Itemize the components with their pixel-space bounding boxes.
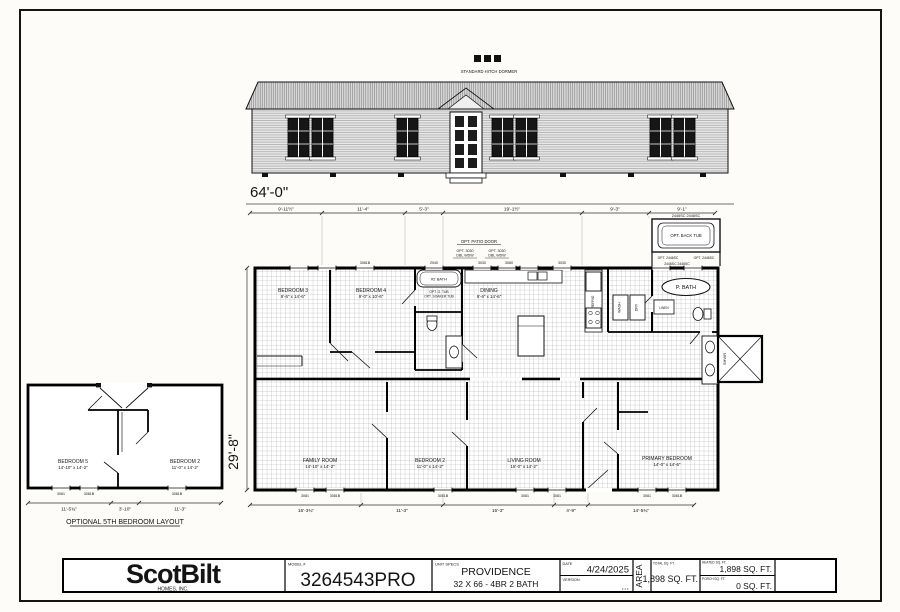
bottom-dim-4: 14'-5¾" xyxy=(633,508,650,514)
room-size-opt-bedroom2: 11'-0" x 14'-2" xyxy=(172,465,199,470)
plan-option-labels: OPT. PATIO DOOR OPT. 3030 OPT. 3030 DBL … xyxy=(453,239,509,258)
opt-dbl-window-label2: DBL WDW xyxy=(488,254,506,258)
dormer-vent-square xyxy=(474,55,481,62)
window-tag: 3081B xyxy=(360,261,371,265)
porch-sqft-label: PORCH SQ. FT. xyxy=(702,577,725,581)
company-logo: ScotBilt xyxy=(126,559,221,589)
optional-layout-caption: OPTIONAL 5TH BEDROOM LAYOUT xyxy=(66,519,185,526)
dimensions-bottom: 15'-3¾" 11'-3" 15'-3" 4'-9" 14'-5¾" xyxy=(248,493,696,514)
refrigerator xyxy=(586,272,601,291)
refrigerator-label: REFRIG xyxy=(591,295,595,308)
bottom-dim-1: 11'-3" xyxy=(396,508,408,514)
top-dim-5: 9'-1" xyxy=(677,207,687,213)
washer-label: WASH xyxy=(618,302,622,313)
elevation-drawing: STANDARD HITCH DORMER 64'-0" xyxy=(246,55,734,204)
entry-steps xyxy=(446,173,486,183)
window-tag: 3081 xyxy=(57,492,65,496)
optional-dim-0: 11'-5¾" xyxy=(61,507,77,513)
primary-bath-label: P. BATH xyxy=(676,285,696,291)
total-sqft-value: 1,898 SQ. FT. xyxy=(642,574,698,584)
opt-dbl-window-label: OPT. 3030 xyxy=(489,249,506,253)
overall-depth-label: 29'-8" xyxy=(225,434,241,470)
room-size-family: 14'-10" x 14'-2" xyxy=(305,464,335,469)
window-tag: 3060 xyxy=(505,261,513,265)
window-tag: 3081 xyxy=(521,494,529,498)
drawing-sheet: STANDARD HITCH DORMER 64'-0" xyxy=(0,0,900,612)
shower-label: SHWR xyxy=(722,353,727,365)
floor-plan: #2 BATH OPT. G. TUB OPT. SOAKER TUB REFR… xyxy=(255,261,762,498)
overall-width-label: 64'-0" xyxy=(250,184,288,201)
room-size-living: 15'-0" x 14'-2" xyxy=(510,464,537,469)
optional-dims: 11'-5¾" 3'-10" 11'-3" xyxy=(26,501,223,513)
opt-back-tub-bumpout: 2446SC 2446SC OPT. BACK TUB OPT. 2446SC … xyxy=(652,214,720,266)
date-value: 4/24/2025 xyxy=(587,565,629,576)
opt-tub-label: OPT. G. TUB xyxy=(429,290,449,294)
room-size-bedroom2: 11'-0" x 14'-2" xyxy=(417,464,444,469)
optional-layout: 3081 3081B 3081B BEDROOM 5 14'-10" x 14'… xyxy=(26,382,223,526)
opt-patio-door-label: OPT. PATIO DOOR xyxy=(461,239,497,244)
dryer-label: DRY xyxy=(635,303,639,311)
entry-door-opening xyxy=(586,488,612,492)
bottom-dim-0: 15'-3¾" xyxy=(298,508,315,514)
date-label: DATE xyxy=(563,562,573,566)
window-tag: 2446SC 2446SC xyxy=(664,262,690,266)
kitchen-island xyxy=(518,316,544,356)
porch-sqft-value: 0 SQ. FT. xyxy=(736,581,772,591)
opt-back-tub-label: OPT. BACK TUB xyxy=(670,233,702,238)
room-size-primary: 14'-0" x 14'-6" xyxy=(653,462,680,467)
opt-tub-label2: OPT. SOAKER TUB xyxy=(424,295,454,299)
window-tag: 3081 xyxy=(643,494,651,498)
room-size-bedroom5: 14'-10" x 14'-2" xyxy=(58,465,88,470)
opt-dbl-window-label: OPT. 3030 xyxy=(457,249,474,253)
dormer-vent-square xyxy=(484,55,491,62)
top-dim-3: 19'-1½" xyxy=(504,206,521,213)
front-door xyxy=(450,112,482,173)
unit-spec: 32 X 66 - 4BR 2 BATH xyxy=(454,579,539,589)
version-value: ... xyxy=(621,582,629,592)
model-number: 3264543PRO xyxy=(300,570,415,591)
top-dim-0: 9'-11½" xyxy=(278,206,294,213)
window-tag: 3081B xyxy=(672,494,683,498)
range xyxy=(586,308,601,328)
opt-window-tag: OPT. 2446SC xyxy=(694,256,715,260)
window-tag: 3081B xyxy=(438,494,449,498)
window-tag: 3030 xyxy=(478,261,486,265)
bottom-dim-3: 4'-9" xyxy=(566,508,576,514)
room-size-bedroom3: 9'-6" x 14'-6" xyxy=(281,294,306,299)
company-logo-sub: HOMES, INC. xyxy=(157,587,188,593)
window-tag: 2446SC 2446SC xyxy=(672,214,701,218)
unit-specs-label: UNIT SPECS xyxy=(435,562,459,567)
optional-dim-1: 3'-10" xyxy=(119,507,132,513)
room-size-dining: 9'-6" x 14'-6" xyxy=(477,294,502,299)
roof xyxy=(246,82,734,109)
top-dim-1: 11'-4" xyxy=(357,207,369,213)
window-tag: 3081 xyxy=(301,494,309,498)
window-tag: 3081B xyxy=(84,492,95,496)
bottom-dim-2: 15'-3" xyxy=(492,508,505,514)
heated-sqft-value: 1,898 SQ. FT. xyxy=(720,564,772,574)
window-tag: 3081B xyxy=(330,494,341,498)
top-dim-2: 5'-3" xyxy=(419,207,429,213)
dimension-left: 29'-8" xyxy=(225,266,249,492)
dormer-vent-square xyxy=(494,55,501,62)
shower-bumpout: SHWR xyxy=(716,336,762,382)
bath2-label: #2 BATH xyxy=(431,277,447,282)
room-size-bedroom4: 9'-0" x 10'-6" xyxy=(359,294,384,299)
model-label: MODEL # xyxy=(288,562,306,567)
unit-name: PROVIDENCE xyxy=(461,566,530,578)
opt-dbl-window-label2: DBL WDW xyxy=(456,254,474,258)
optional-dim-2: 11'-3" xyxy=(174,507,186,513)
window-tag: 3081B xyxy=(172,492,183,496)
dimensions-top: 9'-11½" 11'-4" 5'-3" 19'-1½" 9'-3" 9'-1" xyxy=(248,206,717,266)
title-block: ScotBilt HOMES, INC. MODEL # 3264543PRO … xyxy=(63,559,836,593)
dormer-caption: STANDARD HITCH DORMER xyxy=(461,69,517,74)
optional-window-tags: 3081 3081B 3081B xyxy=(57,492,183,496)
window-tag: 3030 xyxy=(558,261,566,265)
opt-window-tag: OPT. 2446SC xyxy=(658,256,679,260)
window-tag: 2040 xyxy=(430,261,438,265)
linen-label: LINEN xyxy=(659,306,669,310)
optional-top-opening xyxy=(100,382,148,387)
version-label: VERSION xyxy=(563,578,580,582)
total-sqft-label: TOTAL SQ. FT. xyxy=(653,562,675,566)
top-dim-4: 9'-3" xyxy=(610,207,620,213)
